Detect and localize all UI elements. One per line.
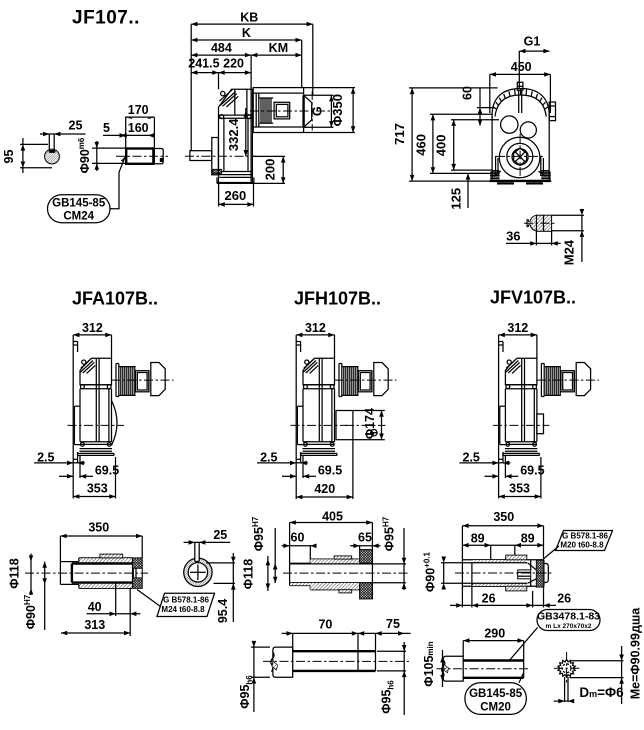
svg-text:160: 160 xyxy=(128,121,149,135)
svg-text:G B578.1-86: G B578.1-86 xyxy=(562,532,608,541)
svg-text:200: 200 xyxy=(262,159,277,181)
svg-text:KM: KM xyxy=(269,41,288,55)
svg-text:G1: G1 xyxy=(524,35,541,49)
svg-text:350: 350 xyxy=(493,510,514,524)
svg-text:26: 26 xyxy=(482,591,496,605)
svg-text:350: 350 xyxy=(88,521,109,535)
svg-text:75: 75 xyxy=(386,617,400,631)
svg-text:GB145-85: GB145-85 xyxy=(469,688,523,700)
svg-text:CM24: CM24 xyxy=(63,211,94,223)
svg-text:26: 26 xyxy=(557,591,571,605)
svg-text:717: 717 xyxy=(392,123,407,145)
svg-text:460: 460 xyxy=(414,134,429,156)
svg-text:65: 65 xyxy=(358,531,372,545)
svg-text:353: 353 xyxy=(87,482,108,496)
svg-text:40: 40 xyxy=(88,600,102,614)
svg-text:290: 290 xyxy=(484,627,505,641)
svg-text:5: 5 xyxy=(103,121,110,135)
svg-text:170: 170 xyxy=(128,103,149,117)
svg-text:Φ350: Φ350 xyxy=(330,94,345,126)
svg-text:60: 60 xyxy=(461,86,475,100)
svg-text:Φ174: Φ174 xyxy=(363,408,377,439)
svg-text:CM20: CM20 xyxy=(480,702,511,714)
svg-text:Φ118: Φ118 xyxy=(242,559,256,589)
svg-text:260: 260 xyxy=(225,188,247,203)
svg-text:KB: KB xyxy=(240,11,258,25)
svg-text:89: 89 xyxy=(471,532,485,546)
svg-text:JFH107B..: JFH107B.. xyxy=(294,289,381,309)
svg-text:Me=Φ90.99дша: Me=Φ90.99дша xyxy=(629,607,643,700)
svg-text:125: 125 xyxy=(448,188,463,210)
svg-text:241.5: 241.5 xyxy=(188,57,219,71)
svg-text:G: G xyxy=(311,106,325,116)
svg-text:m Lx 270x70x2: m Lx 270x70x2 xyxy=(546,623,592,630)
svg-text:313: 313 xyxy=(84,618,105,632)
svg-text:Dm=Φ6: Dm=Φ6 xyxy=(579,685,624,700)
svg-text:450: 450 xyxy=(511,60,532,74)
svg-text:484: 484 xyxy=(211,41,232,55)
svg-text:89: 89 xyxy=(521,532,535,546)
svg-text:M24: M24 xyxy=(561,239,576,265)
svg-text:220: 220 xyxy=(223,57,244,71)
svg-text:36: 36 xyxy=(506,229,520,244)
svg-text:70: 70 xyxy=(318,618,332,632)
svg-text:95.4: 95.4 xyxy=(216,599,230,623)
svg-text:60: 60 xyxy=(291,531,305,545)
svg-text:GB145-85: GB145-85 xyxy=(52,198,106,210)
svg-text:420: 420 xyxy=(314,482,335,496)
svg-text:K: K xyxy=(242,26,251,40)
svg-text:Φ118: Φ118 xyxy=(8,558,22,588)
svg-text:400: 400 xyxy=(434,135,449,157)
svg-text:25: 25 xyxy=(213,528,227,542)
svg-text:405: 405 xyxy=(322,510,343,524)
svg-text:G B578.1-86: G B578.1-86 xyxy=(163,596,209,605)
svg-text:JFV107B..: JFV107B.. xyxy=(490,288,576,308)
svg-text:M20 t60-8.8: M20 t60-8.8 xyxy=(560,541,604,550)
svg-text:95: 95 xyxy=(2,150,16,164)
svg-text:M24 t60-8.8: M24 t60-8.8 xyxy=(161,605,205,614)
svg-text:JF107..: JF107.. xyxy=(72,8,140,29)
svg-text:332.4: 332.4 xyxy=(226,118,241,151)
svg-text:GB3478.1-83: GB3478.1-83 xyxy=(537,611,600,623)
svg-text:353: 353 xyxy=(509,482,530,496)
svg-text:JFA107B..: JFA107B.. xyxy=(72,289,158,309)
svg-text:25: 25 xyxy=(69,119,83,133)
